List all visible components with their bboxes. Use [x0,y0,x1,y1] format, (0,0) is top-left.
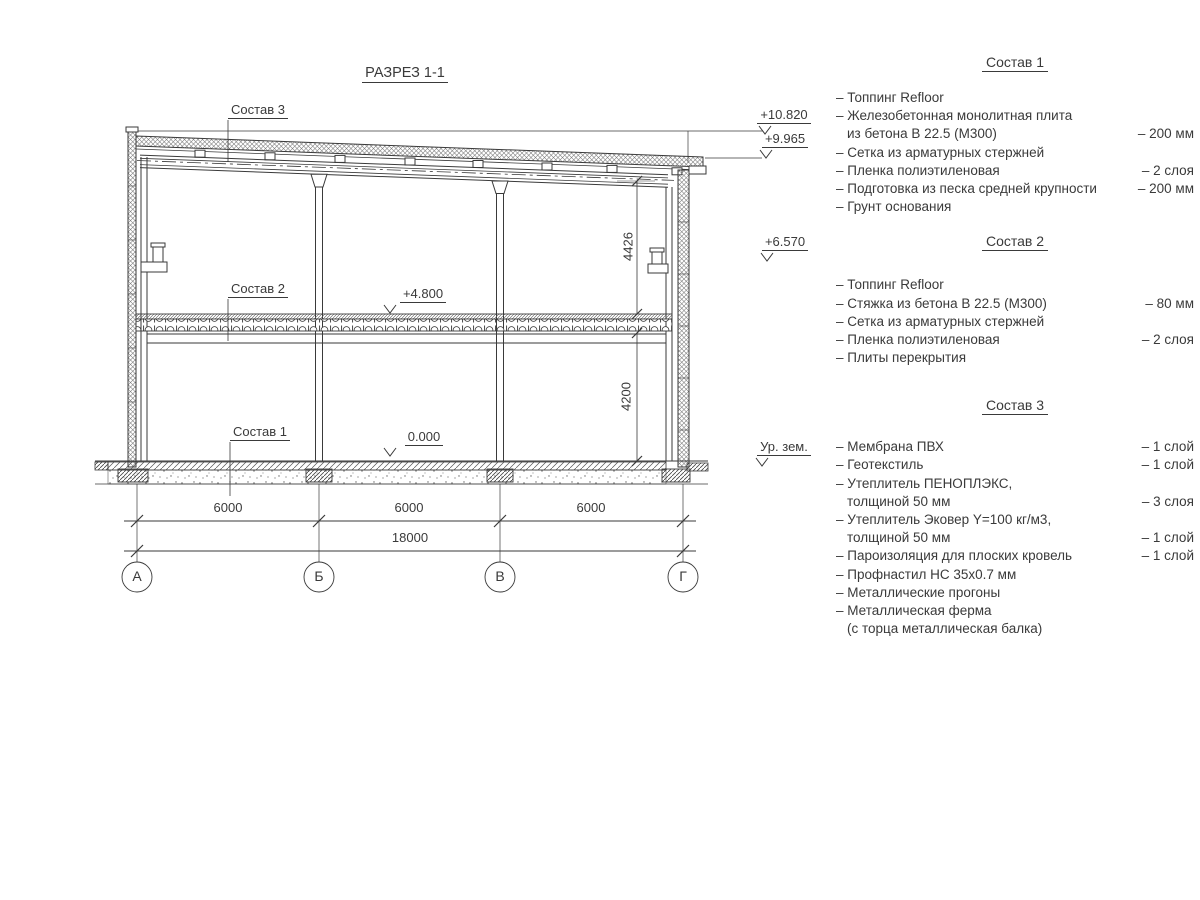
material-row: – Стяжка из бетона В 22.5 (М300)– 80 мм [836,295,1194,313]
material-row: – Геотекстиль– 1 слой [836,456,1194,474]
material-row: – Железобетонная монолитная плита [836,107,1194,125]
material-row: – Пленка полиэтиленовая– 2 слоя [836,331,1194,349]
floor-slab-4800 [136,314,672,343]
material-row: – Сетка из арматурных стержней [836,313,1194,331]
material-row: – Подготовка из песка средней крупности–… [836,180,1194,198]
material-name: – Пленка полиэтиленовая [836,331,1000,349]
material-row: из бетона В 22.5 (М300)– 200 мм [836,125,1194,143]
material-name: – Топпинг Refloor [836,89,944,107]
material-name: – Утеплитель ПЕНОПЛЭКС, [836,475,1012,493]
material-row: – Топпинг Refloor [836,89,1194,107]
material-quantity: – 1 слой [1142,438,1194,456]
callout-sostav-1: Состав 1 [223,424,297,441]
material-quantity: – 80 мм [1145,295,1194,313]
vertical-dim-4200: 4200 [619,374,634,420]
material-quantity: – 2 слоя [1142,331,1194,349]
axis-label-v: В [485,569,515,584]
material-row: – Металлическая ферма [836,602,1194,620]
material-quantity: – 200 мм [1138,125,1194,143]
material-name: толщиной 50 мм [836,529,950,547]
bay-dim-3: 6000 [561,500,621,515]
ground-level-mark: Ур. зем. [752,439,816,456]
axis-label-b: Б [304,569,334,584]
material-quantity: – 1 слой [1142,529,1194,547]
drawing-title: РАЗРЕЗ 1-1 [352,66,458,83]
material-name: – Профнастил НС 35х0.7 мм [836,566,1016,584]
material-quantity: – 1 слой [1142,547,1194,565]
material-name: – Железобетонная монолитная плита [836,107,1072,125]
axis-label-g: Г [668,569,698,584]
material-name: – Стяжка из бетона В 22.5 (М300) [836,295,1047,313]
material-name: – Мембрана ПВХ [836,438,944,456]
roof-assembly [136,136,706,187]
left-wall [126,127,167,467]
material-row: – Топпинг Refloor [836,276,1194,294]
callout-sostav-2: Состав 2 [221,281,295,298]
material-row: – Утеплитель Эковер Y=100 кг/м3, [836,511,1194,529]
composition-title: Состав 2 [836,233,1194,250]
material-row: – Пленка полиэтиленовая– 2 слоя [836,162,1194,180]
material-row: – Утеплитель ПЕНОПЛЭКС, [836,475,1194,493]
material-row: – Металлические прогоны [836,584,1194,602]
material-name: – Металлическая ферма [836,602,992,620]
material-quantity: – 200 мм [1138,180,1194,198]
level-mark-6570: +6.570 [756,234,814,251]
section-linework [95,120,773,592]
material-name: – Сетка из арматурных стержней [836,144,1044,162]
material-row: – Мембрана ПВХ– 1 слой [836,438,1194,456]
level-mark-4800: +4.800 [394,286,452,303]
crane-console-left [141,243,167,272]
axis-label-a: А [122,569,152,584]
material-name: (с торца металлическая балка) [836,620,1042,638]
material-name: – Сетка из арматурных стержней [836,313,1044,331]
level-mark-10820: +10.820 [753,107,815,124]
composition-section-1: Состав 1– Топпинг Refloor– Железобетонна… [836,54,1194,216]
total-dim: 18000 [375,530,445,545]
level-mark-9965: +9.965 [755,131,815,148]
material-name: – Подготовка из песка средней крупности [836,180,1097,198]
material-name: – Плиты перекрытия [836,349,966,367]
material-quantity: – 1 слой [1142,456,1194,474]
material-quantity: – 3 слоя [1142,493,1194,511]
bay-dim-1: 6000 [198,500,258,515]
horizontal-dimensions [124,484,696,562]
material-name: – Пароизоляция для плоских кровель [836,547,1072,565]
material-name: – Грунт основания [836,198,951,216]
material-name: – Геотекстиль [836,456,923,474]
material-name: – Пленка полиэтиленовая [836,162,1000,180]
ground-floor [95,461,708,484]
composition-title: Состав 3 [836,397,1194,414]
material-name: из бетона В 22.5 (М300) [836,125,997,143]
level-mark-0000: 0.000 [396,429,452,446]
material-row: толщиной 50 мм– 1 слой [836,529,1194,547]
material-name: – Утеплитель Эковер Y=100 кг/м3, [836,511,1051,529]
material-quantity: – 2 слоя [1142,162,1194,180]
material-name: толщиной 50 мм [836,493,950,511]
material-row: – Профнастил НС 35х0.7 мм [836,566,1194,584]
vertical-dim-4426: 4426 [621,224,636,270]
crane-console-right [648,248,668,273]
axis-bubbles [122,562,698,592]
material-row: – Сетка из арматурных стержней [836,144,1194,162]
material-row: (с торца металлическая балка) [836,620,1194,638]
callout-sostav-3: Состав 3 [221,102,295,119]
material-row: – Грунт основания [836,198,1194,216]
bay-dim-2: 6000 [379,500,439,515]
composition-section-3: Состав 3– Мембрана ПВХ– 1 слой– Геотекст… [836,397,1194,638]
material-row: – Пароизоляция для плоских кровель– 1 сл… [836,547,1194,565]
drawing-sheet: РАЗРЕЗ 1-1 Состав 3 Состав 2 Состав 1 +4… [0,0,1200,900]
composition-section-2: Состав 2– Топпинг Refloor– Стяжка из бет… [836,233,1194,367]
material-row: – Плиты перекрытия [836,349,1194,367]
materials-panel: Состав 1– Топпинг Refloor– Железобетонна… [836,46,1194,638]
material-row: толщиной 50 мм– 3 слоя [836,493,1194,511]
material-name: – Топпинг Refloor [836,276,944,294]
material-name: – Металлические прогоны [836,584,1000,602]
composition-title: Состав 1 [836,54,1194,71]
